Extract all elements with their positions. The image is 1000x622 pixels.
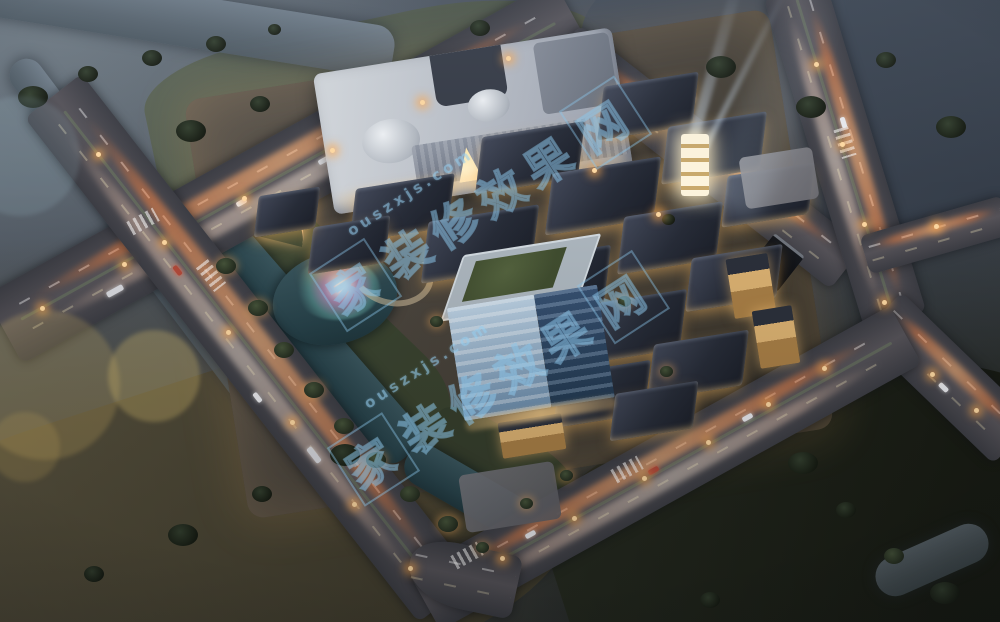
street-lamp: [706, 440, 711, 445]
aerial-night-rendering: ouszxjs.com 家装修效果网 ouszxjs.com 家装修效果网: [0, 0, 1000, 622]
tree: [520, 498, 533, 509]
street-lamp: [330, 148, 335, 153]
tree: [936, 116, 966, 138]
tree: [700, 592, 720, 608]
tree: [662, 214, 675, 225]
tree: [438, 516, 458, 532]
tree: [430, 316, 443, 327]
tree: [876, 52, 896, 68]
tree: [168, 524, 198, 546]
tree: [304, 382, 324, 398]
street-lamp: [572, 516, 577, 521]
tree: [706, 56, 736, 78]
tree: [836, 502, 856, 518]
street-lamp: [592, 168, 597, 173]
street-lamp: [242, 196, 247, 201]
tree: [84, 566, 104, 582]
tree: [788, 452, 818, 474]
street-lamp: [934, 224, 939, 229]
tree: [400, 486, 420, 502]
tree: [660, 366, 673, 377]
tree: [796, 96, 826, 118]
street-lamp: [642, 476, 647, 481]
street-lamp: [840, 142, 845, 147]
tree: [252, 486, 272, 502]
street-lamp: [930, 372, 935, 377]
street-lamp: [226, 330, 231, 335]
glass-office-building: [439, 235, 617, 435]
street-lamp: [822, 366, 827, 371]
street-lamp: [506, 56, 511, 61]
tree: [334, 418, 354, 434]
street-lamp: [420, 100, 425, 105]
street-lamp: [814, 62, 819, 67]
street-lamp: [408, 566, 413, 571]
tree: [884, 548, 904, 564]
tree: [560, 470, 573, 481]
tree: [206, 36, 226, 52]
street-lamp: [500, 556, 505, 561]
tree: [248, 300, 268, 316]
tree: [930, 582, 960, 604]
street-lamp: [974, 408, 979, 413]
street-lamp: [656, 212, 661, 217]
tree: [366, 452, 386, 468]
tree: [470, 20, 490, 36]
street-lamp: [162, 240, 167, 245]
lens-flare-bokeh: [108, 330, 200, 422]
street-lamp: [122, 262, 127, 267]
tree: [250, 96, 270, 112]
street-lamp: [352, 502, 357, 507]
tree: [330, 444, 360, 466]
street-lamp: [862, 222, 867, 227]
lit-pagoda-tower: [681, 134, 709, 196]
tree: [216, 258, 236, 274]
street-lamp: [96, 152, 101, 157]
tree: [176, 120, 206, 142]
tree: [476, 542, 489, 553]
tree: [274, 342, 294, 358]
tree: [142, 50, 162, 66]
tree: [618, 296, 631, 307]
street-lamp: [882, 300, 887, 305]
street-lamp: [290, 420, 295, 425]
tree: [78, 66, 98, 82]
tree: [268, 24, 281, 35]
street-lamp: [766, 402, 771, 407]
